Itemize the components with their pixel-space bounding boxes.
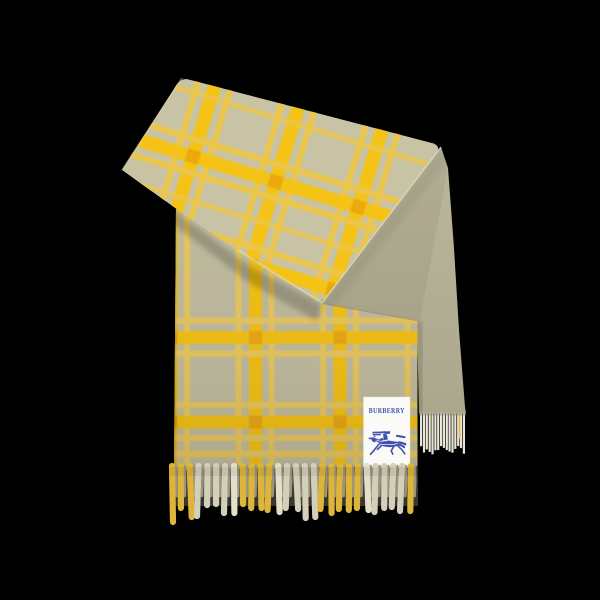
svg-text:BURBERRY: BURBERRY [369, 407, 405, 415]
